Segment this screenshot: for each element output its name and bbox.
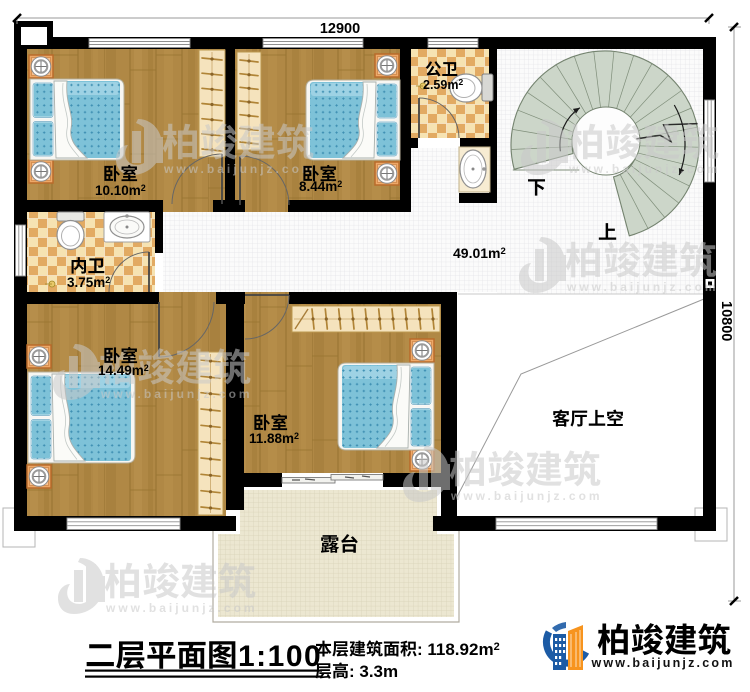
svg-text:: 3.3m: : 3.3m bbox=[349, 662, 398, 681]
svg-text:8.44m2: 8.44m2 bbox=[299, 179, 342, 194]
svg-text:2.59m2: 2.59m2 bbox=[423, 77, 463, 92]
svg-text:: 118.92m2: : 118.92m2 bbox=[417, 640, 500, 659]
svg-text:3.75m2: 3.75m2 bbox=[67, 275, 110, 290]
svg-text:49.01m2: 49.01m2 bbox=[453, 245, 506, 261]
svg-text:12900: 12900 bbox=[320, 21, 360, 37]
svg-text:www.baijunjz.com: www.baijunjz.com bbox=[590, 656, 734, 670]
svg-text:14.49m2: 14.49m2 bbox=[98, 363, 149, 378]
svg-text:11.88m2: 11.88m2 bbox=[249, 431, 299, 446]
svg-text:10.10m2: 10.10m2 bbox=[95, 183, 146, 198]
svg-text:1:100: 1:100 bbox=[238, 640, 322, 673]
svg-text:10800: 10800 bbox=[718, 301, 734, 341]
